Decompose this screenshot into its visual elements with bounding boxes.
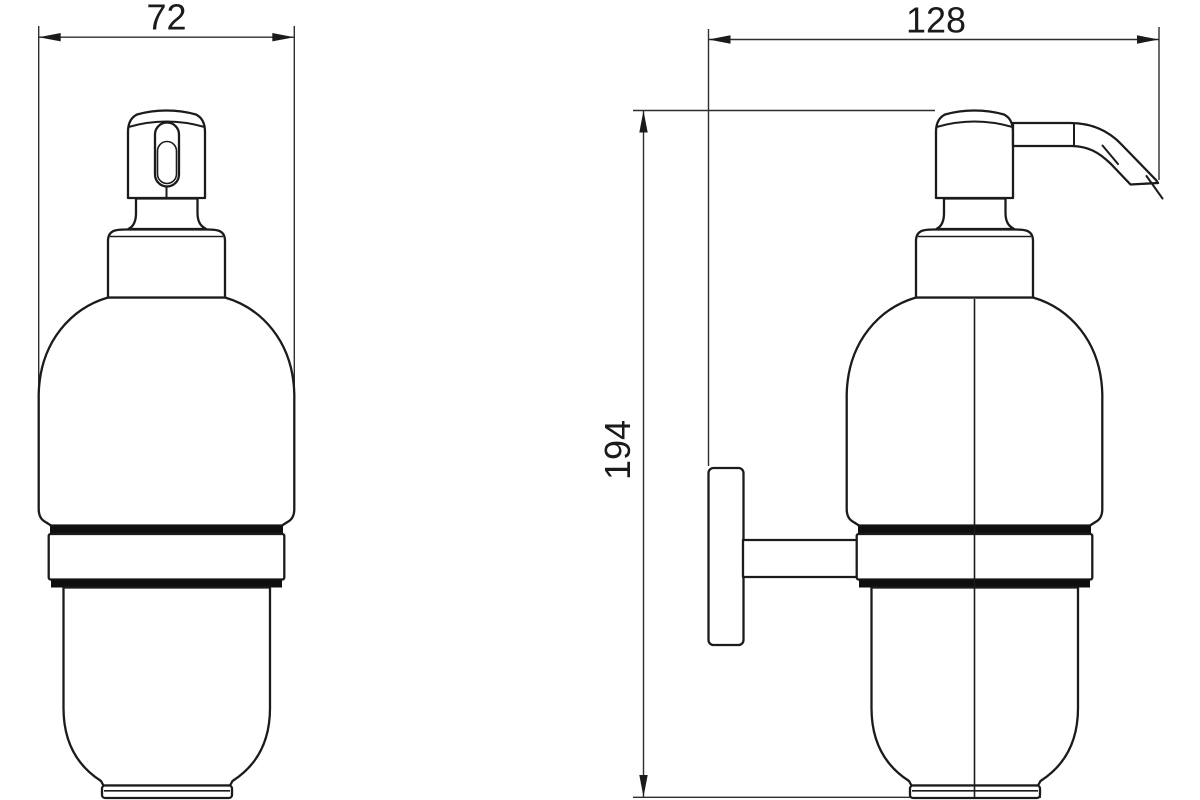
lower-cup bbox=[64, 588, 271, 786]
side-width-dimension-label: 128 bbox=[906, 0, 966, 41]
front-width-dimension-label: 72 bbox=[146, 0, 186, 38]
bottle-collar bbox=[108, 230, 225, 298]
side-height-dimension-label: 194 bbox=[597, 420, 638, 480]
technical-drawing-page: 72 128 bbox=[0, 0, 1200, 800]
mount-arm bbox=[743, 540, 858, 577]
bottle-body bbox=[39, 298, 295, 526]
base-foot bbox=[102, 786, 232, 799]
seal-band bbox=[50, 526, 283, 535]
pump-neck bbox=[937, 199, 1015, 230]
wall-plate bbox=[709, 468, 744, 645]
pump-neck bbox=[129, 199, 207, 230]
technical-drawing-canvas: 72 128 bbox=[0, 0, 1200, 800]
ring-bottom-band bbox=[51, 580, 282, 588]
bottle-collar bbox=[916, 230, 1033, 298]
holder-ring bbox=[49, 534, 285, 580]
